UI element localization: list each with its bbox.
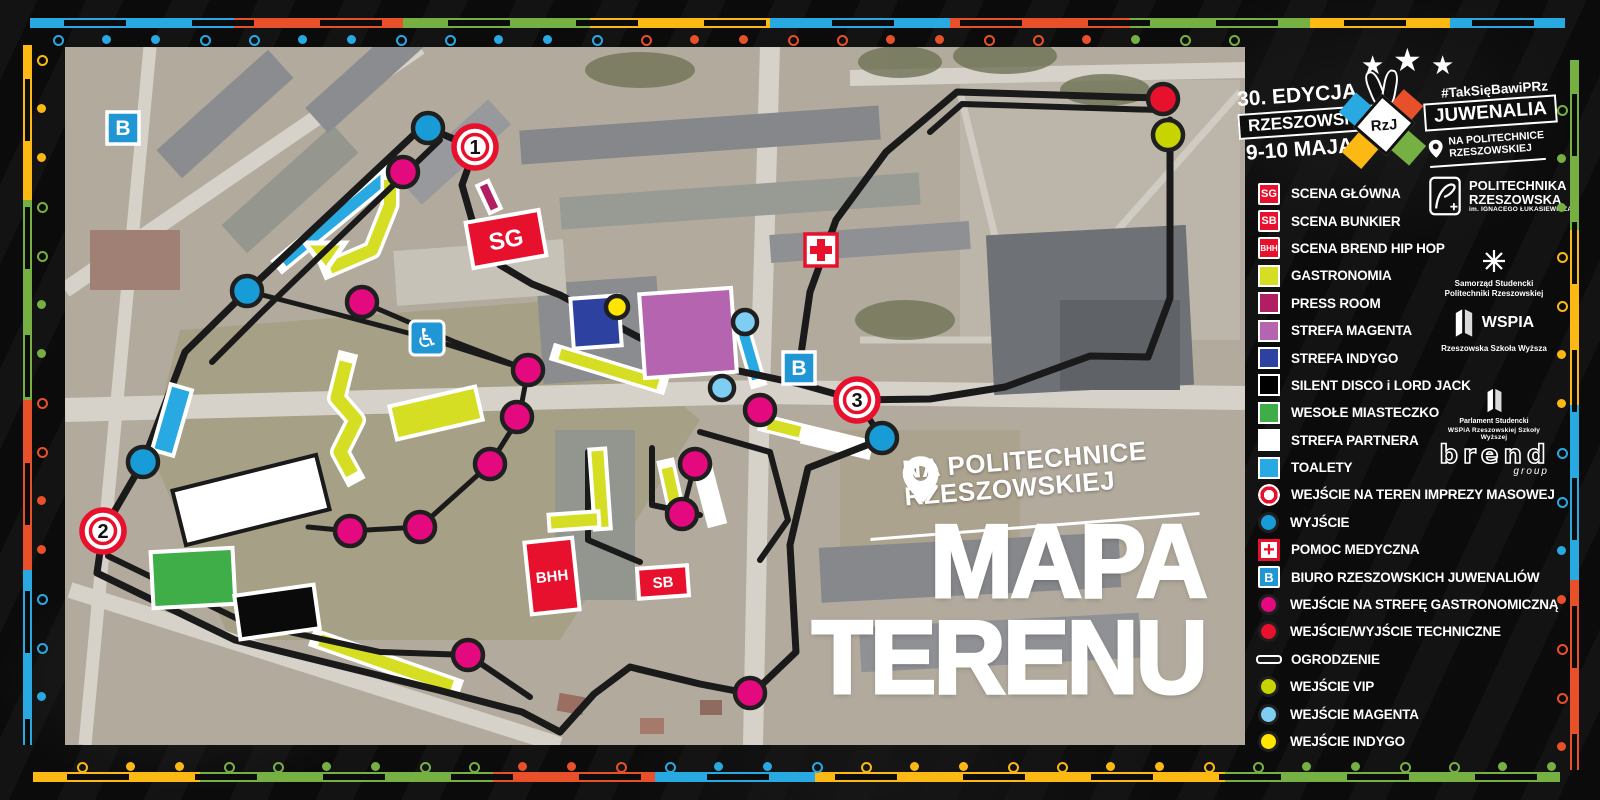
- border-dot: [1557, 546, 1566, 555]
- wspia-logo: [1454, 308, 1474, 338]
- legend-label: STREFA MAGENTA: [1291, 323, 1412, 338]
- gate-number: 3: [851, 390, 862, 412]
- sponsor-name: POLITECHNIKA RZESZOWSKA: [1469, 179, 1559, 206]
- gate-number: 1: [469, 137, 480, 159]
- map-title-line2: TERENU: [706, 611, 1205, 707]
- map-title: MAPA TERENU: [706, 515, 1205, 706]
- legend-swatch-square: [1258, 347, 1280, 369]
- legend-label: PRESS ROOM: [1291, 296, 1381, 311]
- sponsor-politechnika: POLITECHNIKA RZESZOWSKA im. IGNACEGO ŁUK…: [1429, 176, 1572, 216]
- rzj-logo: RzJ: [1340, 71, 1427, 172]
- legend-swatch-ring: [1258, 484, 1280, 506]
- zone-label: SB: [652, 574, 674, 592]
- border-dot: [763, 762, 772, 771]
- exit-marker: [232, 276, 262, 306]
- border-dot: [77, 762, 88, 773]
- zone-stripe: [768, 424, 800, 432]
- border-dot: [714, 762, 723, 771]
- exit-marker: [867, 423, 897, 453]
- zone: [234, 585, 319, 640]
- legend-item: WEJŚCIE VIP: [1258, 673, 1588, 700]
- border-dot: [861, 762, 872, 773]
- wheelchair-badge: ♿: [410, 321, 444, 355]
- legend-swatch-circle: [1258, 704, 1279, 725]
- border-dot: [788, 35, 799, 46]
- map-area: SGBHHSB123BB♿ NA POLITECHNICE RZESZOWSKI…: [65, 47, 1245, 745]
- border-dot: [910, 762, 919, 771]
- border-dot: [175, 762, 184, 771]
- exit-marker: [128, 447, 158, 477]
- b-letter: B: [115, 117, 130, 140]
- legend-item: BBIURO RZESZOWSKICH JUWENALIÓW: [1258, 563, 1588, 590]
- zone-rect: [639, 288, 737, 378]
- magenta-marker: [502, 402, 532, 432]
- border-dot: [322, 762, 331, 771]
- border-dot: [739, 35, 748, 44]
- border-dot: [1557, 644, 1568, 655]
- sponsor-sub: Rzeszowska Szkoła Wyższa: [1439, 344, 1549, 354]
- gate-number: 2: [97, 521, 108, 543]
- legend-label: GASTRONOMIA: [1291, 268, 1392, 283]
- sponsor-brend: brend group: [1435, 440, 1555, 477]
- legend-swatch-square: [1258, 292, 1280, 314]
- legend-label: WEJŚCIE VIP: [1290, 679, 1374, 694]
- legend-item: WEJŚCIE INDYGO: [1258, 728, 1588, 755]
- sponsor-parlament: Parlament Studencki WSPiA Rzeszowskiej S…: [1439, 388, 1549, 441]
- legend-swatch-square: [1258, 265, 1280, 287]
- zone: BHH: [524, 538, 579, 615]
- border-dot: [53, 35, 64, 46]
- magenta-marker: [513, 355, 543, 385]
- legend-label: WEJŚCIE INDYGO: [1290, 734, 1405, 749]
- decorative-border-right: [1570, 60, 1579, 770]
- border-dot: [37, 202, 48, 213]
- map-pin-icon: [901, 454, 941, 507]
- magenta-marker: [475, 449, 505, 479]
- zone-label: BHH: [535, 567, 569, 587]
- border-dot: [273, 762, 284, 773]
- border-dot: [420, 762, 431, 773]
- politechnika-logo: [1429, 176, 1461, 216]
- magenta-marker: [680, 449, 710, 479]
- border-dot: [592, 35, 603, 46]
- border-dot: [641, 35, 652, 46]
- border-dot: [1557, 742, 1566, 751]
- magenta-marker: [335, 516, 365, 546]
- border-dot: [886, 35, 895, 44]
- zone: [151, 548, 236, 608]
- b-badge: B: [783, 352, 815, 384]
- border-dot: [37, 692, 46, 701]
- magenta-marker: [745, 395, 775, 425]
- border-dot: [1204, 762, 1215, 773]
- border-dot: [396, 35, 407, 46]
- border-dot: [298, 35, 307, 44]
- border-dot: [200, 35, 211, 46]
- border-dot: [1008, 762, 1019, 773]
- zone: [549, 511, 600, 530]
- border-dot: [543, 35, 552, 44]
- lightblue-marker: [710, 376, 734, 400]
- map-title-line1: MAPA: [706, 515, 1205, 611]
- border-dot: [1057, 762, 1068, 773]
- border-dot: [37, 496, 46, 505]
- border-dot: [1557, 203, 1566, 212]
- legend-label: WEJŚCIE NA STREFĘ GASTRONOMICZNĄ: [1290, 597, 1558, 612]
- magenta-marker: [405, 512, 435, 542]
- red-marker: [1148, 84, 1178, 114]
- legend-label: OGRODZENIE: [1291, 652, 1380, 667]
- zone-rect: [234, 585, 319, 640]
- border-dot: [224, 762, 235, 773]
- border-dot: [665, 762, 676, 773]
- legend-swatch-circle: [1258, 621, 1279, 642]
- legend-swatch-square: [1258, 374, 1280, 396]
- exit-marker: [413, 113, 443, 143]
- legend-label: WEJŚCIE/WYJŚCIE TECHNICZNE: [1290, 624, 1501, 639]
- legend-label: WEJŚCIE MAGENTA: [1290, 707, 1419, 722]
- border-dot: [102, 35, 111, 44]
- sponsor-sub: WSPiA Rzeszowskiej Szkoły Wyższej: [1439, 427, 1549, 441]
- legend-label: POMOC MEDYCZNA: [1291, 542, 1419, 557]
- border-dot: [37, 55, 48, 66]
- legend-swatch-circle: [1258, 594, 1279, 615]
- border-dot: [1131, 35, 1140, 44]
- legend-item: WEJŚCIE/WYJŚCIE TECHNICZNE: [1258, 618, 1588, 645]
- border-dot: [37, 153, 46, 162]
- border-dot: [494, 35, 503, 44]
- border-dot: [1180, 35, 1191, 46]
- legend-item: OGRODZENIE: [1258, 646, 1588, 673]
- zone: SG: [466, 210, 547, 268]
- legend-label: TOALETY: [1291, 460, 1352, 475]
- legend-label: STREFA PARTNERA: [1291, 433, 1419, 448]
- legend-swatch-square: [1258, 457, 1280, 479]
- legend-label: BIURO RZESZOWSKICH JUWENALIÓW: [1291, 570, 1539, 585]
- border-dot: [37, 643, 48, 654]
- medical-badge: [805, 234, 837, 266]
- border-dot: [1302, 762, 1311, 771]
- legend-item: WEJŚCIE MAGENTA: [1258, 700, 1588, 727]
- border-dot: [1033, 35, 1044, 46]
- border-dot: [959, 762, 968, 771]
- samorzad-logo: [1481, 248, 1507, 274]
- legend-label: WEJŚCIE NA TEREN IMPREZY MASOWEJ: [1291, 487, 1555, 502]
- border-dot: [1557, 595, 1566, 604]
- border-dot: [690, 35, 699, 44]
- legend-swatch-tag: SG: [1258, 183, 1280, 205]
- lightblue-marker: [733, 310, 757, 334]
- border-dot: [1106, 762, 1115, 771]
- legend-swatch-line: [1258, 657, 1280, 662]
- zone: SB: [637, 565, 689, 598]
- border-dot: [1082, 35, 1091, 44]
- border-dot: [1557, 448, 1568, 459]
- gate-2: 2: [82, 510, 124, 552]
- b-badge: B: [107, 112, 139, 144]
- border-dot: [1449, 762, 1460, 773]
- magenta-marker: [667, 499, 697, 529]
- legend-label: SCENA GŁÓWNA: [1291, 186, 1401, 201]
- legend-label: WYJŚCIE: [1290, 515, 1349, 530]
- border-dot: [1557, 301, 1568, 312]
- border-dot: [1547, 762, 1556, 771]
- border-dot: [1557, 497, 1568, 508]
- border-dot: [469, 762, 480, 773]
- legend-swatch-tag: BHH: [1258, 237, 1280, 259]
- legend-label: SCENA BUNKIER: [1291, 214, 1400, 229]
- legend-swatch-circle: [1258, 676, 1279, 697]
- border-dot: [1155, 762, 1164, 771]
- legend-label: SCENA BREND HIP HOP: [1291, 241, 1445, 256]
- border-dot: [935, 35, 944, 44]
- sponsor-name: Parlament Studencki: [1439, 418, 1549, 427]
- legend-item: WYJŚCIE: [1258, 509, 1588, 536]
- border-dot: [616, 762, 627, 773]
- border-dot: [249, 35, 260, 46]
- zone: [639, 288, 737, 378]
- legend-swatch-tag: SB: [1258, 210, 1280, 232]
- border-dot: [518, 762, 527, 771]
- border-dot: [37, 251, 48, 262]
- legend-swatch-tag: B: [1258, 566, 1280, 588]
- star-icon: ★: [1431, 52, 1454, 78]
- legend-swatch-cross: +: [1258, 539, 1280, 561]
- legend-swatch-square: [1258, 429, 1280, 451]
- legend-item: WEJŚCIE NA STREFĘ GASTRONOMICZNĄ: [1258, 591, 1588, 618]
- border-dot: [37, 545, 46, 554]
- border-dot: [1253, 762, 1264, 773]
- legend-item: WEJŚCIE NA TEREN IMPREZY MASOWEJ: [1258, 481, 1588, 508]
- zone-rect: [549, 511, 600, 530]
- map-pin-icon: [1428, 139, 1443, 159]
- border-dot: [151, 35, 160, 44]
- zone-rect: [151, 548, 236, 608]
- vip-marker: [1153, 120, 1183, 150]
- border-dot: [445, 35, 456, 46]
- sponsor-samorzad: Samorząd Studencki Politechniki Rzeszows…: [1439, 248, 1549, 299]
- legend-label: WESOŁE MIASTECZKO: [1291, 405, 1439, 420]
- border-dot: [126, 762, 135, 771]
- border-dot: [837, 35, 848, 46]
- border-dot: [37, 398, 48, 409]
- border-dot: [347, 35, 356, 44]
- legend-swatch-square: [1258, 402, 1280, 424]
- info-panel: ★ ★ ★ 30. EDYCJA RZESZOWSKIE 9-10 MAJA #…: [1243, 0, 1600, 800]
- legend-swatch-circle: [1258, 731, 1279, 752]
- border-dot: [1557, 105, 1568, 116]
- border-dot: [37, 349, 46, 358]
- border-dot: [1557, 693, 1568, 704]
- magenta-marker: [388, 157, 418, 187]
- zone-stripe: [667, 468, 675, 504]
- border-dot: [1557, 252, 1568, 263]
- decorative-border-bottom: [33, 772, 1560, 782]
- border-dot: [37, 104, 46, 113]
- border-dot: [1557, 399, 1566, 408]
- border-dot: [567, 762, 576, 771]
- border-dot: [37, 300, 46, 309]
- legend-item: +POMOC MEDYCZNA: [1258, 536, 1588, 563]
- border-dot: [1557, 350, 1566, 359]
- wheelchair-glyph: ♿: [415, 324, 438, 354]
- gate-1: 1: [454, 126, 496, 168]
- gate-3: 3: [836, 379, 878, 421]
- b-letter: B: [791, 357, 806, 380]
- border-dot: [1557, 154, 1566, 163]
- border-dot: [1400, 762, 1411, 773]
- magenta-marker: [453, 640, 483, 670]
- border-dot: [37, 447, 48, 458]
- festival-map-poster: SGBHHSB123BB♿ NA POLITECHNICE RZESZOWSKI…: [0, 0, 1600, 800]
- legend-swatch-square: [1258, 320, 1280, 342]
- border-dot: [812, 762, 823, 773]
- border-dot: [984, 35, 995, 46]
- border-dot: [371, 762, 380, 771]
- parlament-logo: [1486, 388, 1503, 413]
- border-dot: [1498, 762, 1507, 771]
- border-dot: [1229, 35, 1240, 46]
- sponsor-name: Samorząd Studencki: [1439, 279, 1549, 289]
- sponsor-sub: Politechniki Rzeszowskiej: [1439, 289, 1549, 299]
- legend-swatch-circle: [1258, 512, 1279, 533]
- event-venue-badge: NA POLITECHNICE RZESZOWSKIEJ: [1428, 130, 1546, 168]
- decorative-border-top: [30, 18, 1565, 28]
- yellowdot-marker: [606, 296, 628, 318]
- sponsor-name: WSPIA: [1482, 315, 1534, 332]
- legend-label: STREFA INDYGO: [1291, 351, 1398, 366]
- border-dot: [1351, 762, 1360, 771]
- sponsor-wspia: WSPIA Rzeszowska Szkoła Wyższa: [1439, 308, 1549, 354]
- magenta-marker: [347, 287, 377, 317]
- event-dates: 9-10 MAJA: [1245, 134, 1354, 165]
- border-dot: [37, 594, 48, 605]
- decorative-border-left: [23, 45, 32, 745]
